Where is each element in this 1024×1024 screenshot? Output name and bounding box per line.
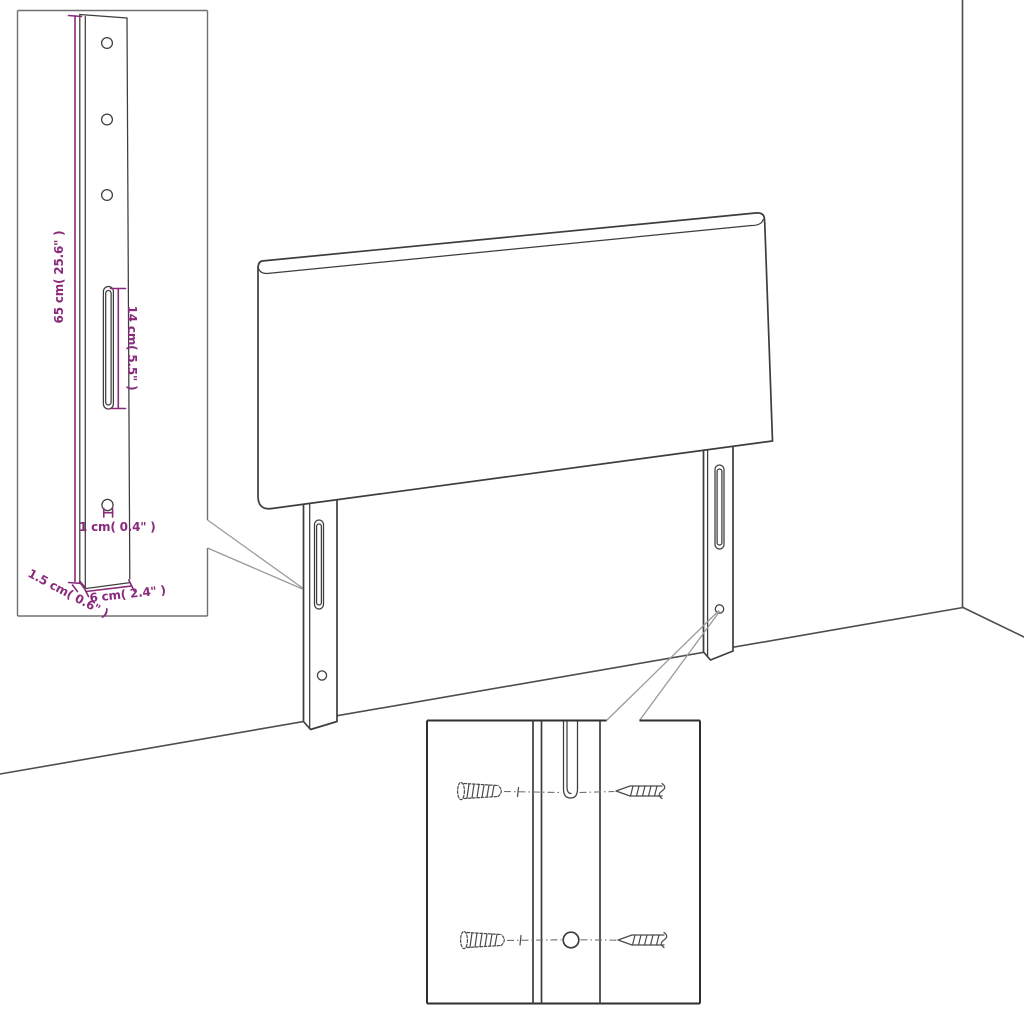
dimension-slot-length: 14 cm( 5.5" ) — [111, 289, 140, 409]
mounting-hole — [563, 932, 579, 948]
left-leg — [304, 493, 338, 730]
wall-plug-top — [458, 782, 502, 799]
mounting-slot — [564, 722, 578, 799]
mounting-leg-strip — [533, 722, 600, 1004]
screw-bottom — [618, 933, 667, 948]
leg-height-label: 65 cm( 25.6" ) — [52, 231, 66, 324]
leg-detail-slot-inner — [106, 291, 111, 406]
leg-detail-drawing — [80, 15, 130, 589]
leg-detail-hole-3 — [102, 190, 113, 201]
headboard-panel — [258, 213, 773, 509]
headboard-dimension-diagram: 65 cm( 25.6" ) 14 cm( 5.5" ) 1 cm( 0.4" … — [0, 0, 1024, 1024]
headboard-panel-outline — [258, 213, 773, 509]
diagram-canvas: 65 cm( 25.6" ) 14 cm( 5.5" ) 1 cm( 0.4" … — [0, 0, 1024, 1024]
dimension-leg-height: 65 cm( 25.6" ) — [52, 16, 82, 584]
floor-line-right — [963, 608, 1024, 638]
leg-detail-hole-2 — [102, 114, 113, 125]
screw-top — [616, 784, 665, 799]
left-leg-hole — [317, 671, 326, 680]
leg-inset-leader-lines — [208, 520, 303, 589]
wall-plug-bottom — [461, 931, 505, 948]
mounting-slot-inner — [567, 722, 571, 794]
leg-detail-slot — [103, 287, 113, 410]
dimension-hole-diameter: 1 cm( 0.4" ) — [79, 509, 156, 535]
hole-diameter-label: 1 cm( 0.4" ) — [79, 520, 156, 534]
floor-line-left — [0, 608, 963, 775]
leg-detail-hole-1 — [102, 38, 113, 49]
slot-length-label: 14 cm( 5.5" ) — [125, 306, 139, 391]
left-leg-board — [304, 493, 338, 730]
mounting-detail-inset — [427, 611, 720, 1004]
